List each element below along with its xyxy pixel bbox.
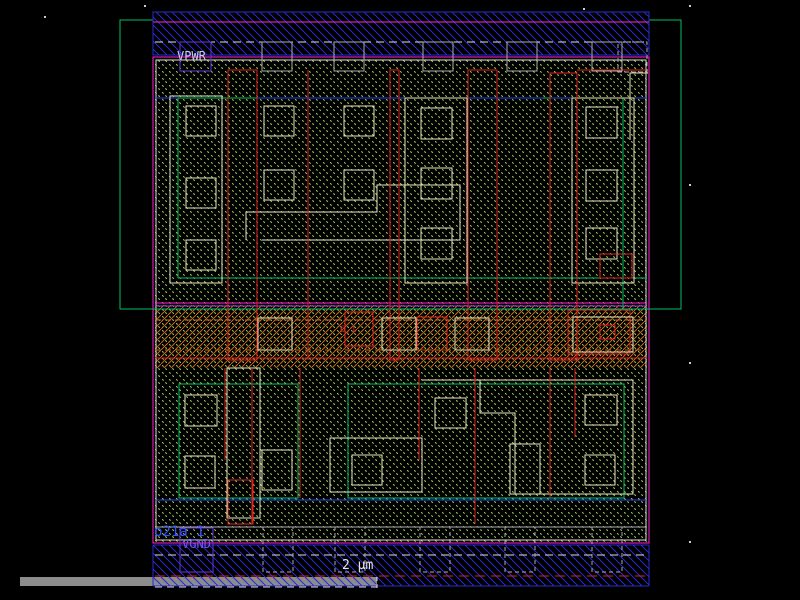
- pmos-diff-region: [155, 59, 647, 305]
- cell-regions: [155, 59, 647, 543]
- vpwr-label: VPWR: [177, 49, 207, 63]
- bottom-li-row: [155, 500, 647, 543]
- vgnd-rail: [153, 545, 649, 586]
- array-marker-label: 6,1: [340, 325, 356, 335]
- instance-label: o21a_1: [154, 524, 205, 540]
- layout-canvas[interactable]: VPWR VGND o21a_1 2 µm 6,1: [0, 0, 800, 600]
- vpwr-rail: [153, 12, 649, 55]
- layout-drawing: VPWR VGND o21a_1 2 µm 6,1: [0, 0, 800, 600]
- scale-label: 2 µm: [342, 558, 373, 573]
